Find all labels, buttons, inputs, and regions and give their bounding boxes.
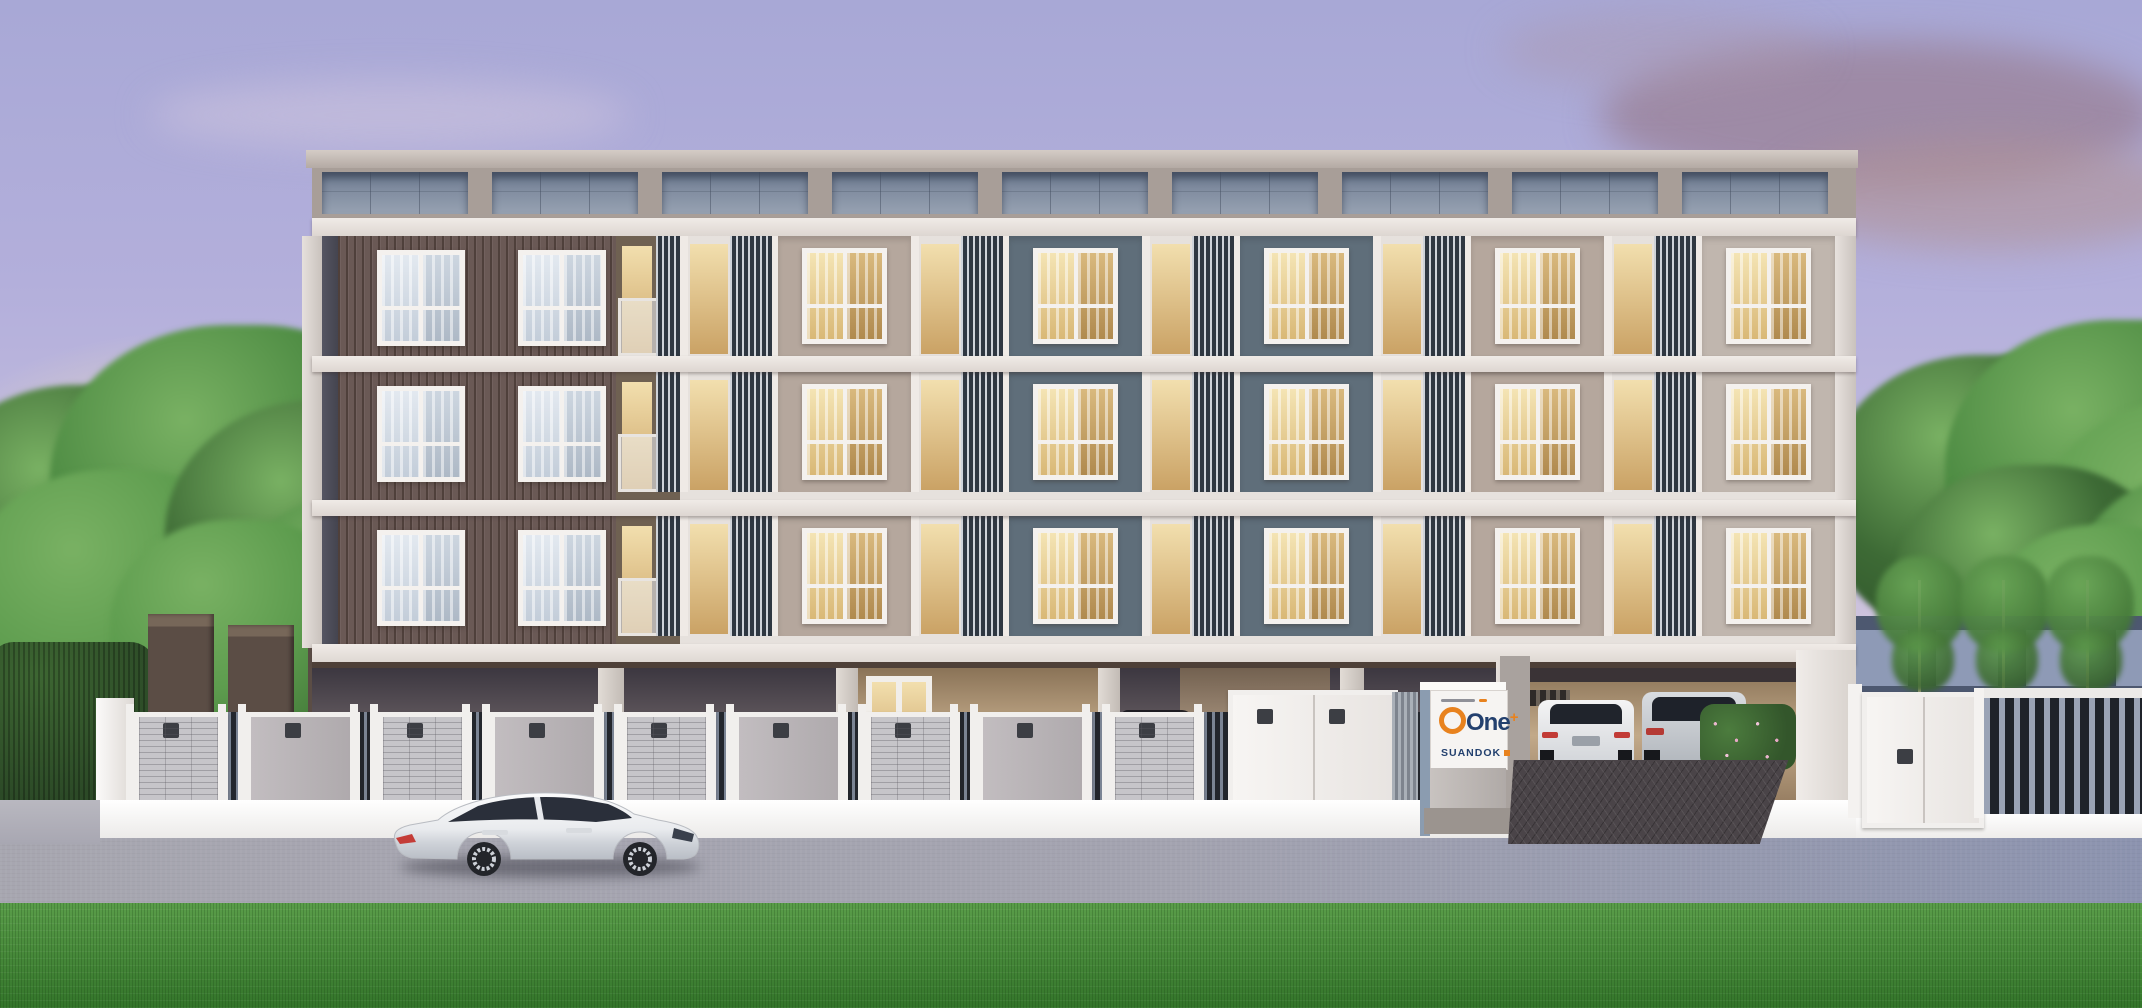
door-handle: [566, 828, 592, 833]
fence-post: [350, 704, 358, 802]
left-sidewalk: [0, 800, 100, 844]
gate-handle: [1897, 749, 1913, 764]
gate-handle: [163, 723, 179, 738]
driveway-pavers: [1508, 760, 1794, 844]
right-fence-post: [1974, 688, 1984, 818]
fence-post: [126, 704, 134, 802]
sign-subtitle-mark: [1504, 750, 1510, 756]
fence-post: [1082, 704, 1090, 802]
fence-post: [370, 704, 378, 802]
road: [0, 838, 2142, 906]
white-sedan: [386, 782, 708, 878]
fence-gate-plain: [734, 712, 848, 812]
rendered-scene: One+ SUANDOK: [0, 0, 2142, 1008]
fence-post: [1102, 704, 1110, 802]
logo-brand-text: One: [1466, 709, 1510, 736]
sign-tagline: [1441, 699, 1487, 702]
gate-handle: [1329, 709, 1345, 724]
fence-post: [726, 704, 734, 802]
sign-subtitle-row: SUANDOK: [1441, 743, 1510, 761]
fence-gate-grid: [1110, 712, 1204, 812]
sign-lower-panel: [1430, 768, 1506, 808]
right-white-gate: [1862, 692, 1984, 828]
fence-post: [858, 704, 866, 802]
door-handle: [482, 830, 508, 835]
logo-plus: +: [1510, 709, 1519, 726]
fence-post: [238, 704, 246, 802]
gate-handle: [1017, 723, 1033, 738]
fence-post: [970, 704, 978, 802]
gate-handle: [895, 723, 911, 738]
right-fence-rail: [1984, 688, 2142, 698]
gate-handle: [651, 723, 667, 738]
gate-handle: [529, 723, 545, 738]
lawn: [0, 903, 2142, 1008]
tagline-bar: [1441, 699, 1475, 702]
project-sign: One+ SUANDOK: [1430, 690, 1508, 770]
fence-gate-plain: [978, 712, 1092, 812]
right-slat-fence: [1984, 696, 2142, 814]
tagline-mark: [1479, 699, 1487, 702]
gate-handle: [407, 723, 423, 738]
fence-post: [218, 704, 226, 802]
fence-post: [1194, 704, 1202, 802]
fence-gate-plain: [246, 712, 360, 812]
right-gate-post: [1848, 684, 1862, 818]
fence-post: [950, 704, 958, 802]
gate-seam: [1923, 697, 1925, 823]
fence-gate-grid: [134, 712, 228, 812]
sign-base: [1424, 808, 1510, 834]
fence-gate-grid: [866, 712, 960, 812]
sign-subtitle: SUANDOK: [1441, 747, 1501, 759]
fence-post: [838, 704, 846, 802]
gate-handle: [285, 723, 301, 738]
gate-handle: [1139, 723, 1155, 738]
gate-handle: [773, 723, 789, 738]
logo-o-ring: [1439, 707, 1466, 734]
gate-handle: [1257, 709, 1273, 724]
sign-logo: One+: [1439, 707, 1518, 737]
